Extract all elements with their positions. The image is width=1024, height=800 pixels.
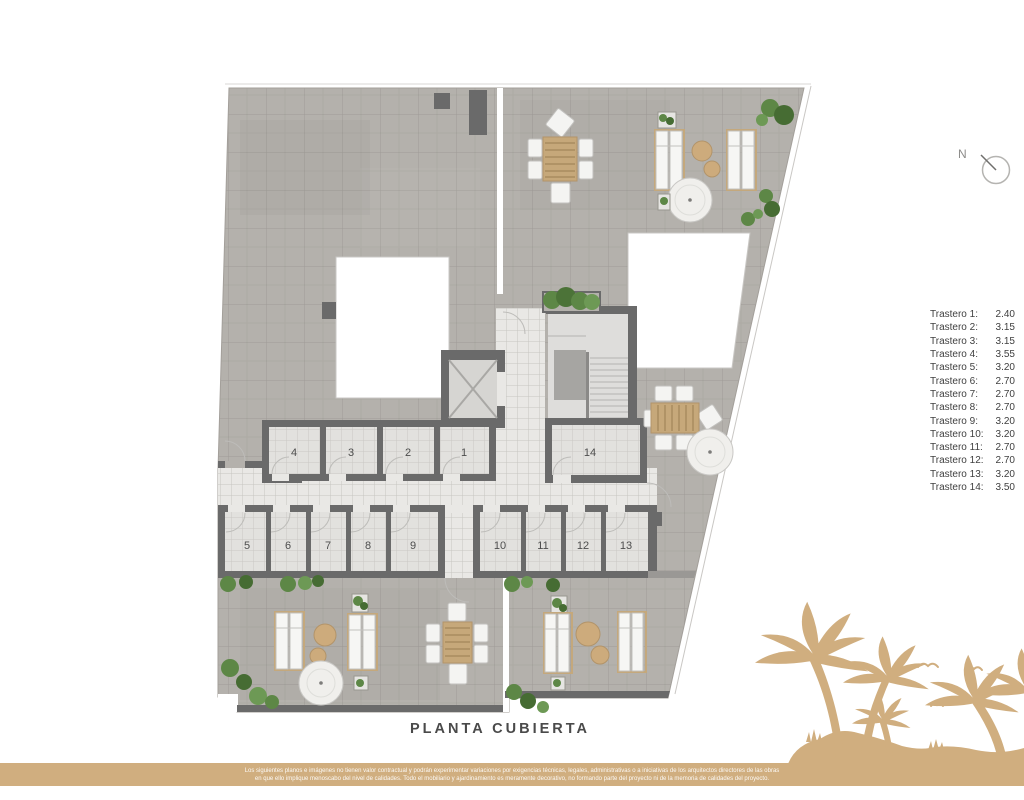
storage-room-11-number: 11	[537, 540, 548, 552]
legend-row: Trastero 14:3.50	[930, 481, 1015, 494]
storage-block-top: 4 3 2 1	[262, 420, 496, 483]
storage-room-8-number: 8	[365, 540, 371, 552]
parasol	[299, 661, 343, 705]
storage-room-9-number: 9	[410, 540, 416, 552]
footer-disclaimer: Los siguientes planos e imágenes no tien…	[0, 763, 1024, 786]
legend-row: Trastero 9:3.20	[930, 414, 1015, 427]
elevator	[441, 350, 506, 428]
side-table	[704, 161, 720, 177]
side-table	[576, 622, 600, 646]
storage-block-bottom-right: 10 11 12 13	[473, 505, 662, 578]
terrace-parapet	[648, 571, 696, 578]
storage-room-10-number: 10	[494, 540, 506, 552]
legend-row: Trastero 8:2.70	[930, 401, 1015, 414]
legend-row: Trastero 1:2.40	[930, 308, 1015, 321]
legend-row: Trastero 10:3.20	[930, 428, 1015, 441]
roof-divider-joint	[497, 88, 503, 294]
page: 4 3 2 1 14	[0, 0, 1024, 800]
side-table	[314, 624, 336, 646]
floor-plan-svg: 4 3 2 1 14	[0, 0, 1024, 800]
storage-room-4-number: 4	[291, 447, 297, 459]
north-label: N	[958, 147, 967, 161]
legend-row: Trastero 6:2.70	[930, 374, 1015, 387]
storage-room-5-number: 5	[244, 540, 250, 552]
footer-line-1: Los siguientes planos e imágenes no tien…	[0, 767, 1024, 775]
footer-line-2: en que ello implique menoscabo del nivel…	[0, 775, 1024, 783]
legend-row: Trastero 2:3.15	[930, 321, 1015, 334]
storage-room-13-number: 13	[620, 540, 632, 552]
parasol	[687, 429, 733, 475]
legend-row: Trastero 13:3.20	[930, 468, 1015, 481]
roof-opening-right	[628, 233, 750, 368]
legend-row: Trastero 7:2.70	[930, 388, 1015, 401]
side-table	[692, 141, 712, 161]
page-title: PLANTA CUBIERTA	[0, 721, 1000, 737]
storage-room-12-number: 12	[577, 540, 589, 552]
storage-room-14-number: 14	[584, 447, 596, 459]
storage-room-14: 14	[545, 418, 647, 483]
palm-trees-illustration	[755, 602, 1024, 764]
corner-notch	[218, 694, 238, 712]
parasol	[668, 178, 712, 222]
storage-room-6-number: 6	[285, 540, 291, 552]
staircase	[546, 306, 637, 426]
side-table	[591, 646, 609, 664]
storage-room-7-number: 7	[325, 540, 331, 552]
north-indicator: N	[958, 147, 1010, 184]
legend-row: Trastero 3:3.15	[930, 335, 1015, 348]
rooftop-block	[434, 93, 450, 109]
rooftop-block	[469, 90, 487, 135]
legend-row: Trastero 4:3.55	[930, 348, 1015, 361]
storage-block-bottom-left: 5 6 7 8 9	[218, 505, 445, 578]
rooftop-block	[322, 302, 336, 319]
storage-room-3-number: 3	[348, 447, 354, 459]
roof-opening-left	[336, 257, 449, 398]
legend-row: Trastero 12:2.70	[930, 454, 1015, 467]
legend-row: Trastero 11:2.70	[930, 441, 1015, 454]
storage-room-2-number: 2	[405, 447, 411, 459]
legend: Trastero 1:2.40 Trastero 2:3.15 Trastero…	[930, 308, 1015, 494]
storage-room-1-number: 1	[461, 447, 467, 459]
legend-row: Trastero 5:3.20	[930, 361, 1015, 374]
